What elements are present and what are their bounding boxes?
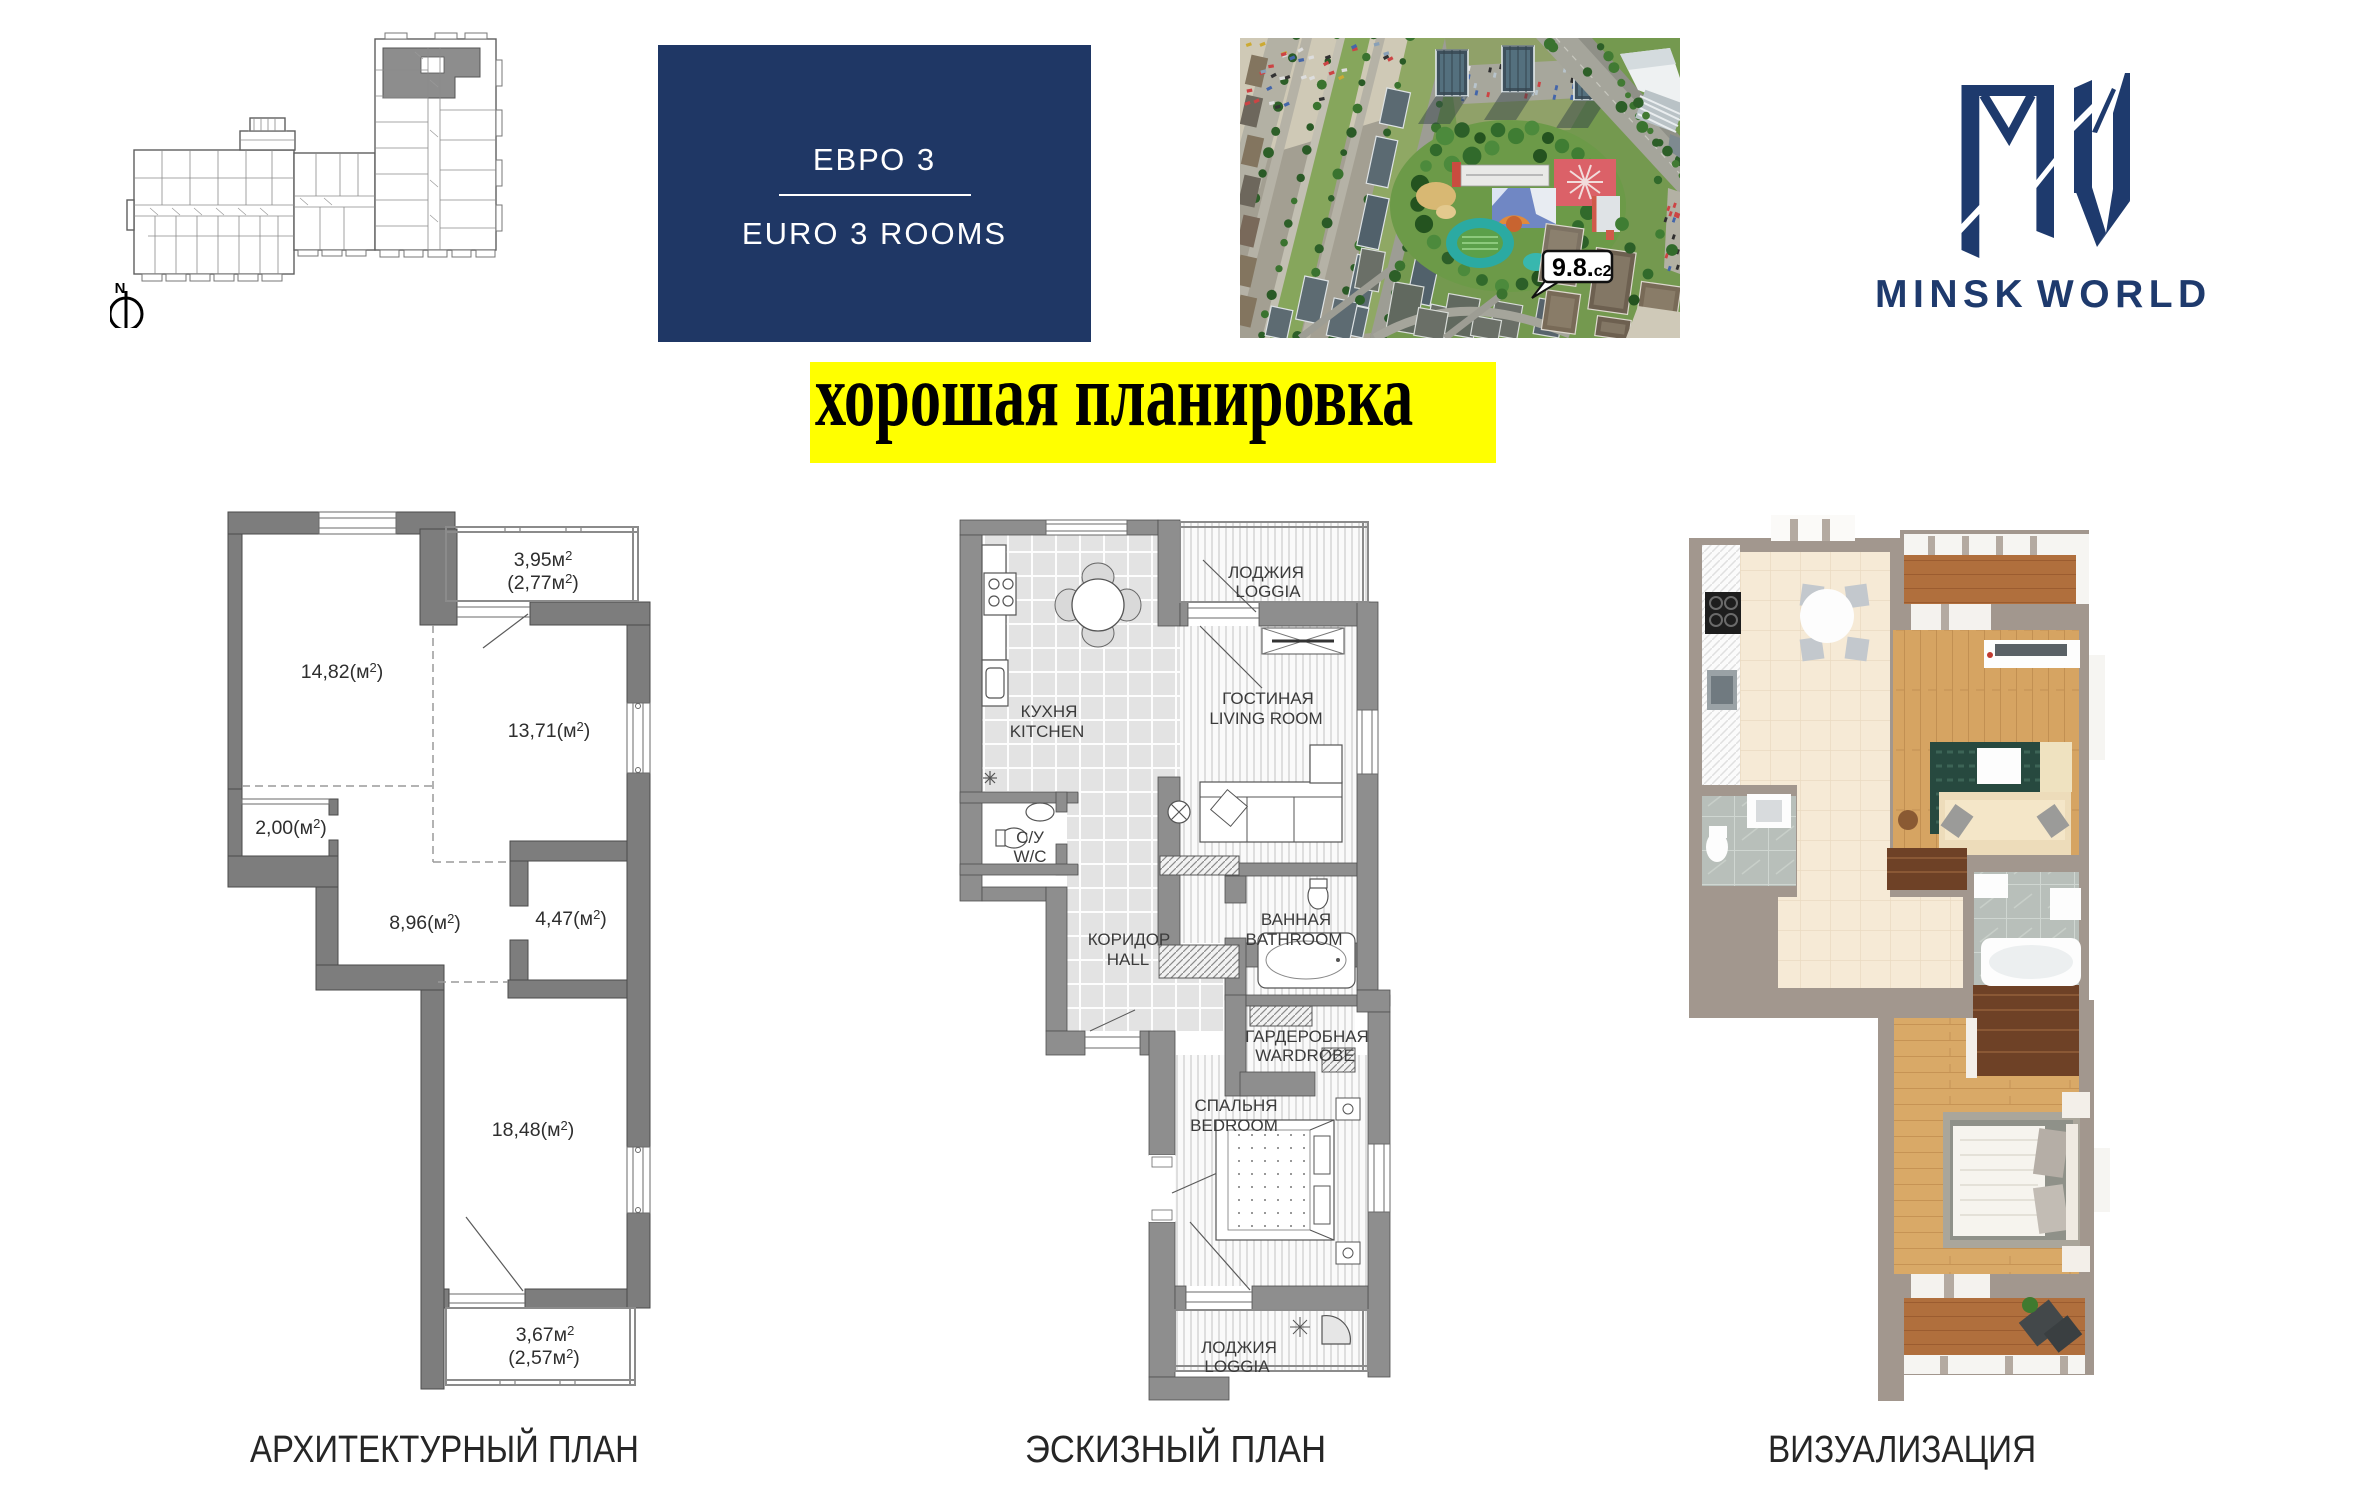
svg-text:ГОСТИНАЯ: ГОСТИНАЯ xyxy=(1222,689,1314,708)
svg-text:KITCHEN: KITCHEN xyxy=(1010,722,1085,741)
svg-text:СПАЛЬНЯ: СПАЛЬНЯ xyxy=(1194,1096,1277,1115)
svg-text:ВАННАЯ: ВАННАЯ xyxy=(1261,910,1331,929)
svg-text:BATHROOM: BATHROOM xyxy=(1246,930,1343,949)
svg-text:КУХНЯ: КУХНЯ xyxy=(1021,702,1078,721)
svg-text:С/У: С/У xyxy=(1016,828,1044,847)
svg-text:2,00(м2): 2,00(м2) xyxy=(255,816,327,839)
svg-text:LOGGIA: LOGGIA xyxy=(1235,582,1301,601)
svg-text:8,96(м2): 8,96(м2) xyxy=(389,911,461,934)
svg-text:BEDROOM: BEDROOM xyxy=(1190,1116,1278,1135)
svg-text:(2,57м2): (2,57м2) xyxy=(508,1346,580,1369)
svg-text:HALL: HALL xyxy=(1107,950,1150,969)
svg-text:4,47(м2): 4,47(м2) xyxy=(535,907,607,930)
svg-text:КОРИДОР: КОРИДОР xyxy=(1088,930,1171,949)
svg-text:3,67м2: 3,67м2 xyxy=(516,1323,575,1346)
svg-text:N: N xyxy=(115,280,126,297)
svg-text:18,48(м2): 18,48(м2) xyxy=(492,1118,574,1141)
svg-text:ЛОДЖИЯ: ЛОДЖИЯ xyxy=(1201,1338,1277,1357)
svg-text:WARDROBE: WARDROBE xyxy=(1255,1046,1355,1065)
svg-text:(2,77м2): (2,77м2) xyxy=(507,571,579,594)
svg-text:W/C: W/C xyxy=(1013,847,1046,866)
svg-text:13,71(м2): 13,71(м2) xyxy=(508,719,590,742)
svg-text:LOGGIA: LOGGIA xyxy=(1204,1357,1270,1376)
svg-text:LIVING ROOM: LIVING ROOM xyxy=(1209,709,1322,728)
svg-text:ГАРДЕРОБНАЯ: ГАРДЕРОБНАЯ xyxy=(1245,1027,1369,1046)
svg-text:14,82(м2): 14,82(м2) xyxy=(301,660,383,683)
svg-text:3,95м2: 3,95м2 xyxy=(514,548,573,571)
svg-text:ЛОДЖИЯ: ЛОДЖИЯ xyxy=(1228,563,1304,582)
